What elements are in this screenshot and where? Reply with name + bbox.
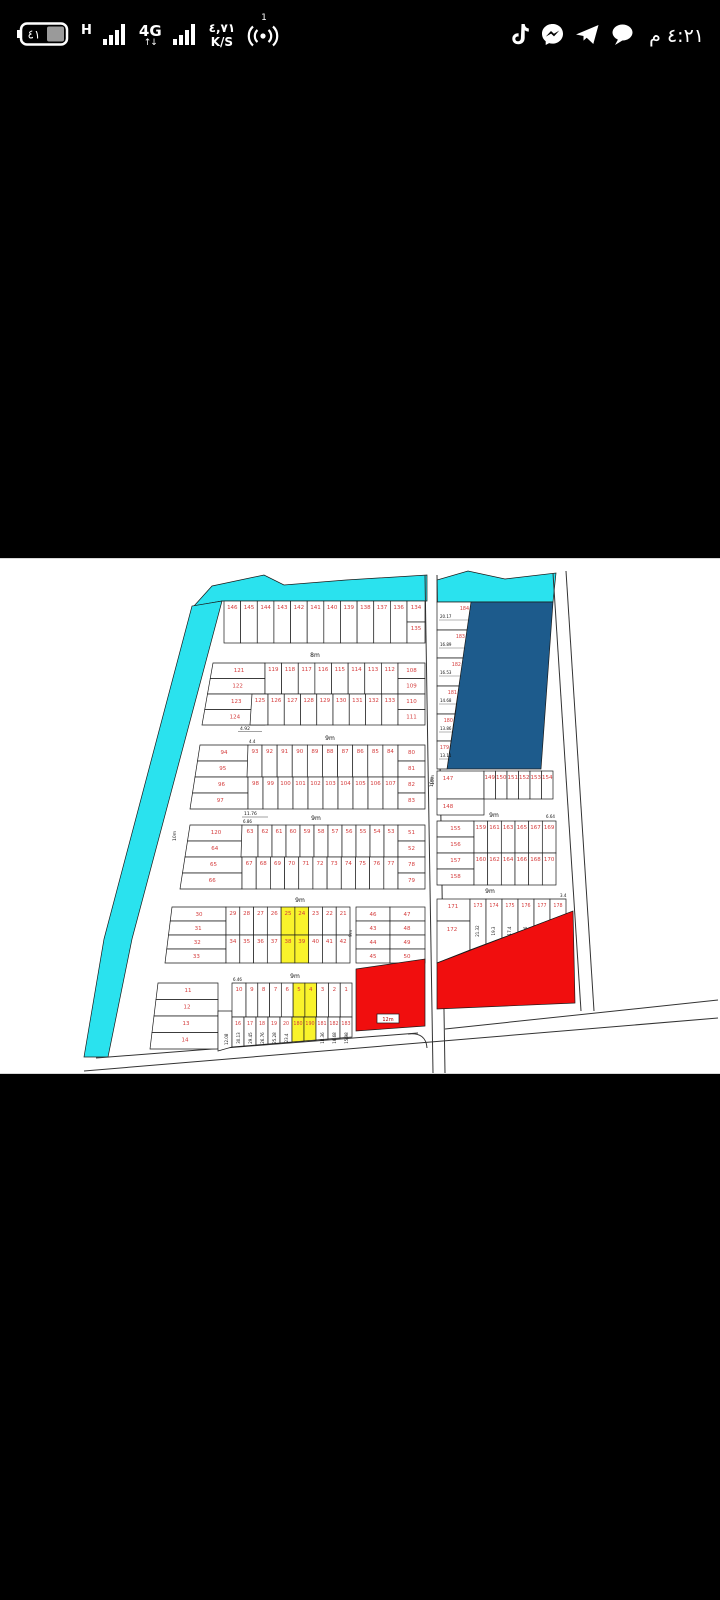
svg-text:111: 111 — [406, 715, 417, 721]
svg-text:60: 60 — [290, 829, 297, 835]
svg-text:160: 160 — [476, 857, 487, 863]
svg-text:95: 95 — [219, 766, 226, 772]
svg-text:9m: 9m — [311, 815, 321, 822]
signal-bars-icon-2 — [173, 23, 198, 50]
svg-text:4: 4 — [309, 987, 313, 993]
svg-text:142: 142 — [294, 605, 305, 611]
hotspot-icon: 1 — [246, 20, 280, 52]
svg-text:144: 144 — [260, 605, 271, 611]
network-speed: ٤,٧١ K/S — [209, 22, 236, 50]
svg-text:25: 25 — [285, 911, 292, 917]
svg-text:34: 34 — [229, 939, 236, 945]
svg-text:104: 104 — [340, 781, 351, 787]
svg-text:129: 129 — [320, 698, 331, 704]
svg-text:79: 79 — [408, 878, 415, 884]
svg-text:146: 146 — [227, 605, 238, 611]
svg-text:52: 52 — [408, 846, 415, 852]
svg-text:105: 105 — [355, 781, 366, 787]
plot-map-svg: 1461451441431421411401391381371361341358… — [0, 559, 720, 1073]
svg-text:18: 18 — [259, 1021, 265, 1027]
svg-text:91: 91 — [281, 749, 288, 755]
svg-text:113: 113 — [368, 667, 379, 673]
svg-text:153: 153 — [531, 775, 542, 781]
svg-text:182: 182 — [329, 1021, 338, 1027]
speed-unit: K/S — [211, 36, 233, 50]
svg-text:85: 85 — [372, 749, 379, 755]
svg-text:9m: 9m — [325, 735, 335, 742]
svg-text:150: 150 — [496, 775, 507, 781]
svg-text:6.64: 6.64 — [546, 814, 555, 819]
svg-text:183: 183 — [456, 634, 465, 640]
svg-text:9m: 9m — [295, 897, 305, 904]
svg-text:92: 92 — [266, 749, 273, 755]
svg-text:64: 64 — [211, 846, 218, 852]
svg-text:89: 89 — [311, 749, 318, 755]
svg-text:83: 83 — [408, 798, 415, 804]
svg-text:181: 181 — [317, 1021, 326, 1027]
svg-text:167: 167 — [530, 825, 541, 831]
svg-text:38: 38 — [285, 939, 292, 945]
svg-text:18.36: 18.36 — [320, 1032, 325, 1044]
svg-text:57: 57 — [332, 829, 339, 835]
battery-icon: ٤١ — [16, 21, 70, 51]
svg-text:143: 143 — [277, 605, 288, 611]
svg-text:86: 86 — [357, 749, 364, 755]
svg-text:119: 119 — [268, 667, 279, 673]
svg-text:21: 21 — [340, 911, 347, 917]
svg-text:81: 81 — [408, 766, 415, 772]
svg-text:108: 108 — [406, 668, 417, 674]
svg-text:7: 7 — [274, 987, 278, 993]
svg-text:73: 73 — [331, 861, 338, 867]
svg-text:49: 49 — [404, 940, 411, 946]
svg-text:118: 118 — [285, 667, 296, 673]
svg-text:94: 94 — [221, 750, 228, 756]
status-bar-right: ٤:٢١ م — [509, 22, 704, 50]
svg-text:67: 67 — [246, 861, 253, 867]
status-bar: ٤١ H 4G ↑↓ ٤,٧١ K/S — [0, 0, 720, 72]
svg-text:97: 97 — [217, 798, 224, 804]
signal-bars-icon — [103, 23, 128, 50]
svg-text:134: 134 — [411, 605, 422, 611]
svg-text:25.28: 25.28 — [272, 1032, 277, 1044]
svg-text:76: 76 — [373, 861, 380, 867]
svg-text:158: 158 — [450, 874, 461, 880]
svg-text:121: 121 — [234, 668, 245, 674]
svg-text:12.08: 12.08 — [224, 1033, 229, 1045]
svg-text:4.92: 4.92 — [240, 726, 250, 732]
svg-text:47: 47 — [404, 912, 411, 918]
svg-text:80: 80 — [408, 750, 415, 756]
svg-text:74: 74 — [345, 861, 352, 867]
svg-text:13.11: 13.11 — [440, 753, 452, 758]
svg-text:162: 162 — [489, 857, 500, 863]
svg-text:75: 75 — [359, 861, 366, 867]
svg-text:29: 29 — [229, 911, 236, 917]
svg-text:123: 123 — [231, 699, 242, 705]
svg-text:77: 77 — [387, 861, 394, 867]
svg-text:177: 177 — [537, 903, 546, 909]
phone-screen: { "status_bar": { "battery_level": "٤١",… — [0, 0, 720, 1600]
svg-text:183: 183 — [341, 1021, 350, 1027]
hotspot-count-badge: 1 — [261, 13, 267, 23]
svg-text:139: 139 — [344, 605, 355, 611]
svg-text:116: 116 — [318, 667, 329, 673]
svg-text:4.4: 4.4 — [249, 739, 256, 744]
svg-text:45: 45 — [370, 954, 377, 960]
svg-text:145: 145 — [244, 605, 255, 611]
svg-text:147: 147 — [443, 776, 454, 782]
telegram-icon — [575, 24, 600, 49]
svg-text:69: 69 — [274, 861, 281, 867]
svg-text:136: 136 — [393, 605, 404, 611]
svg-text:39: 39 — [298, 939, 305, 945]
svg-text:22: 22 — [326, 911, 333, 917]
svg-text:112: 112 — [384, 667, 395, 673]
svg-text:122: 122 — [232, 684, 243, 690]
svg-text:17.4: 17.4 — [507, 926, 512, 935]
svg-text:23: 23 — [312, 911, 319, 917]
svg-text:161: 161 — [489, 825, 500, 831]
svg-text:16.53: 16.53 — [440, 670, 452, 675]
svg-text:14.68: 14.68 — [440, 698, 452, 703]
svg-text:109: 109 — [406, 684, 417, 690]
svg-text:126: 126 — [271, 698, 282, 704]
svg-text:44: 44 — [370, 940, 377, 946]
svg-text:20.17: 20.17 — [440, 614, 452, 619]
svg-text:138: 138 — [360, 605, 371, 611]
svg-text:99: 99 — [267, 781, 274, 787]
status-bar-left: ٤١ H 4G ↑↓ ٤,٧١ K/S — [16, 20, 280, 52]
svg-text:88: 88 — [327, 749, 334, 755]
svg-text:171: 171 — [448, 904, 459, 910]
svg-text:48: 48 — [404, 926, 411, 932]
svg-text:42: 42 — [340, 939, 347, 945]
svg-text:13: 13 — [183, 1021, 190, 1027]
svg-text:54: 54 — [374, 829, 381, 835]
svg-text:157: 157 — [450, 858, 461, 864]
svg-text:154: 154 — [542, 775, 553, 781]
svg-text:148: 148 — [443, 804, 454, 810]
svg-text:30: 30 — [196, 912, 203, 918]
speed-value: ٤,٧١ — [209, 22, 236, 36]
svg-text:9: 9 — [250, 987, 254, 993]
svg-text:71: 71 — [302, 861, 309, 867]
svg-text:43: 43 — [370, 926, 377, 932]
tiktok-icon — [509, 22, 530, 50]
svg-text:65: 65 — [210, 862, 217, 868]
svg-text:37: 37 — [271, 939, 278, 945]
svg-text:6.86: 6.86 — [243, 819, 252, 824]
svg-text:124: 124 — [230, 715, 241, 721]
svg-text:125: 125 — [255, 698, 266, 704]
svg-text:17: 17 — [247, 1021, 253, 1027]
svg-text:31: 31 — [195, 926, 202, 932]
svg-text:62: 62 — [262, 829, 269, 835]
svg-text:5: 5 — [297, 987, 301, 993]
svg-text:190: 190 — [305, 1021, 314, 1027]
svg-text:50: 50 — [404, 954, 411, 960]
svg-text:78: 78 — [408, 862, 415, 868]
svg-text:98: 98 — [252, 781, 259, 787]
svg-text:6: 6 — [285, 987, 289, 993]
svg-text:128: 128 — [303, 698, 314, 704]
svg-text:165: 165 — [517, 825, 528, 831]
network-type: 4G ↑↓ — [139, 24, 162, 48]
svg-text:19.3: 19.3 — [491, 926, 496, 935]
svg-text:8m: 8m — [310, 652, 320, 659]
svg-text:2: 2 — [333, 987, 337, 993]
svg-text:140: 140 — [327, 605, 338, 611]
svg-text:33: 33 — [193, 954, 200, 960]
network-h-label: H — [81, 23, 92, 38]
svg-text:19: 19 — [271, 1021, 277, 1027]
svg-text:87: 87 — [342, 749, 349, 755]
svg-text:10m: 10m — [430, 775, 436, 785]
messenger-icon — [541, 23, 564, 50]
svg-text:10: 10 — [236, 987, 243, 993]
svg-text:159: 159 — [476, 825, 487, 831]
svg-text:16.68: 16.68 — [332, 1032, 337, 1044]
svg-text:9m: 9m — [489, 812, 499, 819]
svg-text:96: 96 — [218, 782, 225, 788]
svg-text:26.76: 26.76 — [260, 1032, 265, 1044]
svg-text:101: 101 — [295, 781, 306, 787]
svg-text:168: 168 — [530, 857, 541, 863]
svg-text:14: 14 — [182, 1038, 189, 1044]
svg-text:40: 40 — [312, 939, 319, 945]
svg-text:61: 61 — [276, 829, 283, 835]
svg-text:46: 46 — [370, 912, 377, 918]
svg-text:169: 169 — [544, 825, 555, 831]
svg-text:3.4: 3.4 — [560, 893, 567, 898]
svg-text:58: 58 — [318, 829, 325, 835]
svg-text:53: 53 — [388, 829, 395, 835]
svg-text:26: 26 — [271, 911, 278, 917]
svg-text:182: 182 — [452, 662, 461, 668]
svg-text:174: 174 — [489, 903, 498, 909]
svg-text:21.32: 21.32 — [475, 925, 480, 937]
svg-text:156: 156 — [450, 842, 461, 848]
svg-text:32: 32 — [194, 940, 201, 946]
svg-text:63: 63 — [247, 829, 254, 835]
svg-text:184: 184 — [460, 606, 469, 612]
battery-percent: ٤١ — [28, 28, 41, 42]
svg-text:9m: 9m — [348, 930, 354, 937]
svg-text:24: 24 — [298, 911, 305, 917]
svg-text:27: 27 — [257, 911, 264, 917]
svg-text:114: 114 — [351, 667, 362, 673]
svg-text:175: 175 — [505, 903, 514, 909]
svg-text:9m: 9m — [485, 888, 495, 895]
svg-text:8: 8 — [262, 987, 266, 993]
svg-text:180: 180 — [444, 718, 453, 724]
svg-text:180: 180 — [293, 1021, 302, 1027]
svg-text:11: 11 — [185, 988, 192, 994]
svg-text:70: 70 — [288, 861, 295, 867]
svg-text:12: 12 — [184, 1005, 191, 1011]
svg-text:20: 20 — [283, 1021, 289, 1027]
svg-text:173: 173 — [473, 903, 482, 909]
svg-text:152: 152 — [519, 775, 530, 781]
svg-text:93: 93 — [252, 749, 259, 755]
svg-text:120: 120 — [211, 830, 222, 836]
svg-text:51: 51 — [408, 830, 415, 836]
svg-text:166: 166 — [517, 857, 528, 863]
svg-text:106: 106 — [370, 781, 381, 787]
svg-text:100: 100 — [280, 781, 291, 787]
svg-text:56: 56 — [346, 829, 353, 835]
svg-text:179: 179 — [440, 745, 449, 751]
svg-text:102: 102 — [310, 781, 321, 787]
svg-text:3: 3 — [321, 987, 325, 993]
svg-text:68: 68 — [260, 861, 267, 867]
svg-text:135: 135 — [411, 626, 422, 632]
land-plot-map: 1461451441431421411401391381371361341358… — [0, 559, 720, 1073]
chat-bubble-icon — [611, 23, 634, 50]
svg-text:90: 90 — [296, 749, 303, 755]
svg-text:149: 149 — [485, 775, 496, 781]
svg-text:23.4: 23.4 — [284, 1033, 289, 1042]
svg-text:110: 110 — [406, 699, 417, 705]
svg-text:35: 35 — [243, 939, 250, 945]
svg-text:55: 55 — [360, 829, 367, 835]
svg-text:178: 178 — [553, 903, 562, 909]
svg-text:103: 103 — [325, 781, 336, 787]
svg-text:132: 132 — [368, 698, 379, 704]
svg-text:130: 130 — [336, 698, 347, 704]
data-arrows-icon: ↑↓ — [144, 39, 157, 48]
svg-text:127: 127 — [287, 698, 298, 704]
svg-text:12m: 12m — [382, 1017, 393, 1023]
svg-text:84: 84 — [387, 749, 394, 755]
svg-text:59: 59 — [304, 829, 311, 835]
svg-text:131: 131 — [352, 698, 363, 704]
svg-text:16.89: 16.89 — [440, 642, 452, 647]
svg-text:164: 164 — [503, 857, 514, 863]
svg-text:151: 151 — [508, 775, 519, 781]
svg-text:30.13: 30.13 — [236, 1032, 241, 1044]
svg-text:170: 170 — [544, 857, 555, 863]
svg-text:72: 72 — [317, 861, 324, 867]
svg-text:117: 117 — [301, 667, 312, 673]
svg-text:181: 181 — [448, 690, 457, 696]
svg-text:9m: 9m — [290, 973, 300, 980]
svg-text:137: 137 — [377, 605, 388, 611]
svg-text:41: 41 — [326, 939, 333, 945]
svg-text:28: 28 — [243, 911, 250, 917]
svg-text:6.46: 6.46 — [233, 977, 242, 982]
svg-text:13.86: 13.86 — [440, 726, 452, 731]
svg-text:16: 16 — [235, 1021, 241, 1027]
svg-text:115: 115 — [335, 667, 346, 673]
svg-text:29.45: 29.45 — [248, 1032, 253, 1044]
svg-text:82: 82 — [408, 782, 415, 788]
svg-text:176: 176 — [521, 903, 530, 909]
clock-time: ٤:٢١ م — [649, 25, 704, 47]
svg-text:141: 141 — [310, 605, 321, 611]
svg-text:11.76: 11.76 — [244, 811, 257, 817]
svg-text:107: 107 — [385, 781, 396, 787]
svg-text:163: 163 — [503, 825, 514, 831]
network-4g-label: 4G — [139, 24, 162, 39]
svg-text:15.98: 15.98 — [344, 1032, 349, 1044]
svg-text:172: 172 — [447, 927, 458, 933]
svg-text:10m: 10m — [172, 831, 178, 841]
svg-text:36: 36 — [257, 939, 264, 945]
svg-text:1: 1 — [344, 987, 348, 993]
map-image[interactable]: 1461451441431421411401391381371361341358… — [0, 558, 720, 1074]
svg-text:155: 155 — [450, 826, 461, 832]
svg-text:133: 133 — [385, 698, 396, 704]
svg-text:66: 66 — [209, 878, 216, 884]
